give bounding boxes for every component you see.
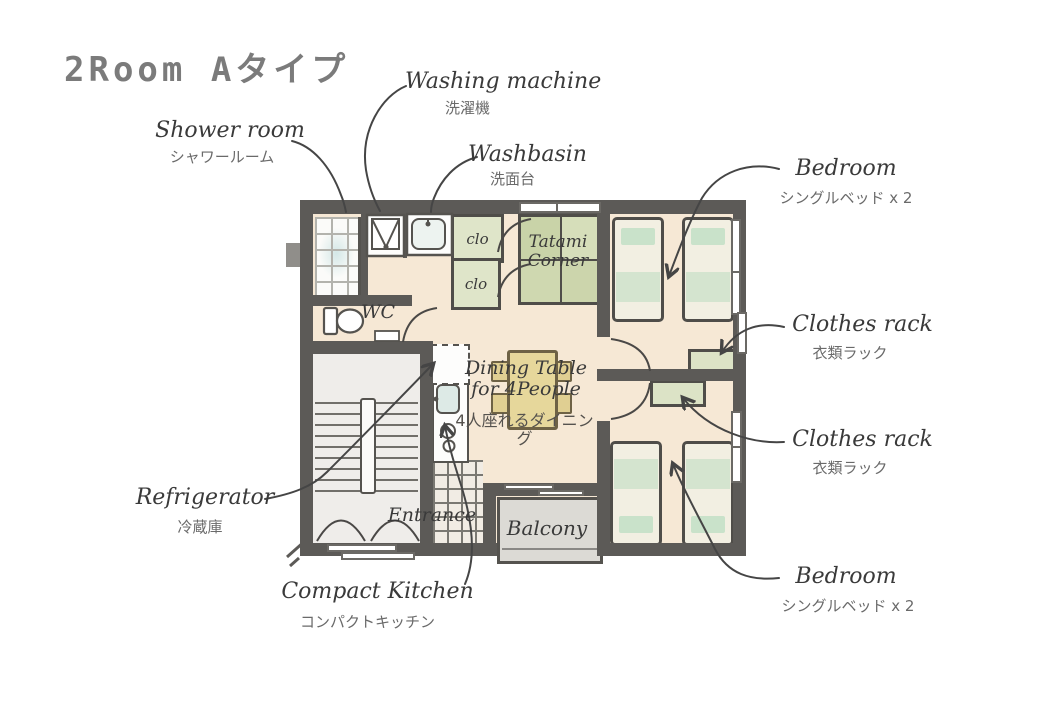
wall-left — [300, 200, 313, 556]
window-right-upper — [731, 219, 741, 315]
bed-blanket — [616, 272, 660, 302]
page-title: 2Room Aタイプ — [64, 42, 349, 91]
front-door-a — [327, 544, 397, 552]
shower-room-area — [315, 217, 361, 297]
balcony-edge-line — [502, 548, 598, 550]
bed-blanket — [614, 459, 658, 489]
label-washbasin-en: Washbasin — [460, 142, 595, 167]
wall-bottom-right — [597, 543, 746, 556]
label-compact-kitchen-jp: コンパクトキッチン — [280, 611, 455, 632]
window-top — [519, 202, 601, 213]
wall-washbasin — [403, 214, 407, 258]
window-top-sash — [556, 203, 558, 212]
dining-jp-label: 4人座れるダイニング — [452, 419, 597, 441]
wall-bedroom-divider — [597, 369, 746, 381]
closet-2-label: clo — [465, 275, 487, 293]
bed-single — [610, 441, 662, 546]
entrance-tile-floor — [433, 460, 483, 543]
label-compact-kitchen-en: Compact Kitchen — [280, 579, 475, 604]
label-bedroom-bottom-jp: シングルベッド x 2 — [772, 595, 924, 616]
label-clothes-rack-bottom-en: Clothes rack — [785, 427, 940, 452]
label-shower-room-en: Shower room — [155, 118, 305, 143]
window-right-offset — [737, 312, 747, 354]
label-bedroom-top-jp: シングルベッド x 2 — [770, 187, 922, 208]
closet-1-label: clo — [466, 230, 488, 248]
label-clothes-rack-top-jp: 衣類ラック — [785, 342, 915, 363]
label-refrigerator-jp: 冷蔵庫 — [140, 516, 260, 537]
bed-single — [612, 217, 664, 322]
label-shower-room-jp: シャワールーム — [147, 146, 297, 167]
wall-stub-exterior — [286, 243, 300, 267]
bed-single — [682, 441, 734, 546]
window-right-lower-sash — [732, 446, 741, 448]
front-door-b — [341, 552, 415, 560]
wall-wc-bottom — [302, 341, 433, 354]
bed-pillow — [691, 516, 725, 533]
tatami-corner-label: Tatami Corner — [516, 226, 600, 278]
stair-rail — [360, 398, 376, 494]
wall-shower-divider — [361, 214, 368, 304]
bed-pillow — [691, 228, 725, 245]
label-bedroom-bottom-en: Bedroom — [780, 564, 912, 589]
label-clothes-rack-top-en: Clothes rack — [785, 312, 940, 337]
closet-1: clo — [451, 214, 504, 263]
bed-blanket — [686, 459, 730, 489]
leader-washing-machine — [365, 86, 406, 211]
bed-single — [682, 217, 734, 322]
label-washing-machine-en: Washing machine — [405, 69, 570, 94]
label-bedroom-top-en: Bedroom — [780, 156, 912, 181]
label-washbasin-jp: 洗面台 — [460, 168, 565, 189]
floor-plan-page: 2Room Aタイプ clo clo — [0, 0, 1040, 720]
dining-table-label: Dining Table for 4People — [462, 351, 590, 407]
wc-label: WC — [354, 300, 402, 326]
balcony-sliding-door-b — [538, 490, 584, 496]
closet-2: clo — [451, 258, 501, 310]
wall-entrance-balcony — [483, 483, 496, 556]
label-clothes-rack-bottom-jp: 衣類ラック — [785, 457, 915, 478]
label-washing-machine-jp: 洗濯機 — [405, 97, 530, 118]
wall-middle-lower — [597, 421, 610, 556]
bed-pillow — [619, 516, 653, 533]
entrance-label: Entrance — [384, 503, 480, 529]
label-refrigerator-en: Refrigerator — [125, 485, 285, 510]
window-right-upper-sash — [732, 271, 740, 273]
bed-pillow — [621, 228, 655, 245]
bed-blanket — [686, 272, 730, 302]
clothes-rack-lower — [650, 380, 706, 407]
balcony-label: Balcony — [497, 513, 597, 543]
